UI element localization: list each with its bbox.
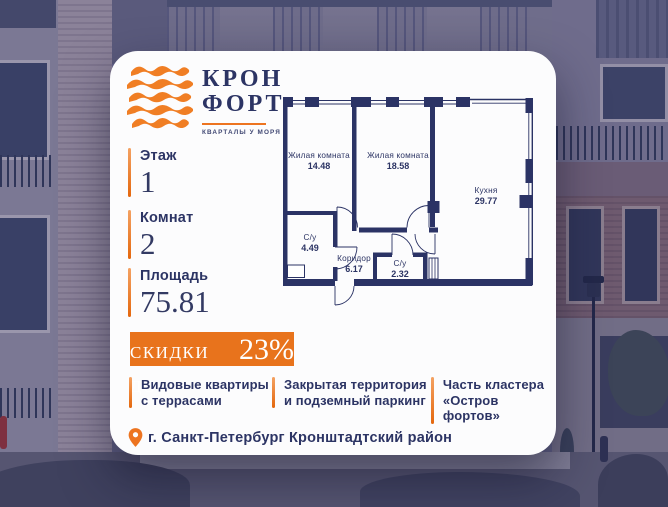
background-bush [608,330,668,416]
stat-area-label: Площадь [140,268,210,284]
room-name: Жилая комната [367,151,429,160]
room-area: 6.17 [337,264,371,274]
stat-area: Площадь 75.81 [128,268,210,317]
stat-floor-value: 1 [140,167,177,197]
feature-line: Закрытая территория [284,377,427,393]
background-facade-beam [552,162,668,196]
discount-value: 23% [239,333,294,367]
background-window [600,64,668,122]
background-window [0,60,50,160]
room-name: С/у [391,259,409,268]
room-name: Кухня [475,186,498,195]
pedestrian-silhouette [0,416,7,449]
stat-floor-label: Этаж [140,148,177,164]
promo-banner: КРОН ФОРТ КВАРТАЛЫ У МОРЯ Этаж 1 Комнат … [0,0,668,507]
background-window [622,206,660,304]
discount-badge: СКИДКИ ДО 23% [130,332,294,366]
stat-rooms: Комнат 2 [128,210,193,259]
room-name: С/у [301,233,319,242]
accent-bar [129,377,132,408]
background-window [0,215,50,333]
floor-plan-drawing [283,95,537,310]
background-window [0,0,56,28]
room-label-kitchen: Кухня 29.77 [475,186,498,206]
background-brick-pier [58,0,112,462]
promo-card: КРОН ФОРТ КВАРТАЛЫ У МОРЯ Этаж 1 Комнат … [110,51,556,455]
feature-line: с террасами [141,393,269,409]
stat-rooms-label: Комнат [140,210,193,226]
room-area: 14.48 [288,161,350,171]
location-pin-icon [128,428,143,447]
background-building-right [552,0,668,462]
feature-line: Часть кластера [443,377,556,393]
accent-bar [128,210,131,259]
logo-divider [202,123,266,125]
stat-area-value: 75.81 [140,287,210,317]
background-balcony-railing [0,155,56,187]
feature-closed-territory: Закрытая территория и подземный паркинг [272,377,427,408]
room-label-corridor: Коридор 6.17 [337,254,371,274]
background-bush [360,472,580,507]
feature-line: и подземный паркинг [284,393,427,409]
stat-floor: Этаж 1 [128,148,177,197]
room-area: 4.49 [301,243,319,253]
brand-logo-waves-icon [127,64,193,130]
feature-cluster: Часть кластера «Остров фортов» [431,377,556,424]
background-ground [0,452,668,507]
room-area: 2.32 [391,269,409,279]
street-lamp-head [583,276,604,283]
room-label-living2: Жилая комната 18.58 [367,151,429,171]
background-balcony-railing [556,126,668,160]
pedestrian-silhouette [600,436,608,462]
background-roofline [112,0,556,7]
background-building-left [0,0,112,462]
background-cladding [596,0,668,58]
room-name: Жилая комната [288,151,350,160]
location-text: г. Санкт-Петербург Кронштадтский район [148,430,452,446]
feature-line: «Остров фортов» [443,393,556,424]
floor-plan: Жилая комната 14.48 Жилая комната 18.58 … [283,95,537,310]
room-label-living1: Жилая комната 14.48 [288,151,350,171]
background-balcony-railing [0,388,56,418]
room-area: 29.77 [475,196,498,206]
background-bush [598,454,668,507]
feature-view-apartments: Видовые квартиры с террасами [129,377,269,408]
street-lamp-light [587,283,600,297]
feature-line: Видовые квартиры [141,377,269,393]
room-label-bath1: С/у 4.49 [301,233,319,253]
background-bush [0,460,190,507]
room-name: Коридор [337,254,371,263]
accent-bar [431,377,434,424]
room-label-bath2: С/у 2.32 [391,259,409,279]
accent-bar [128,148,131,197]
accent-bar [128,268,131,317]
accent-bar [272,377,275,408]
room-area: 18.58 [367,161,429,171]
brand-name-line1: КРОН [202,65,312,90]
stat-rooms-value: 2 [140,229,193,259]
